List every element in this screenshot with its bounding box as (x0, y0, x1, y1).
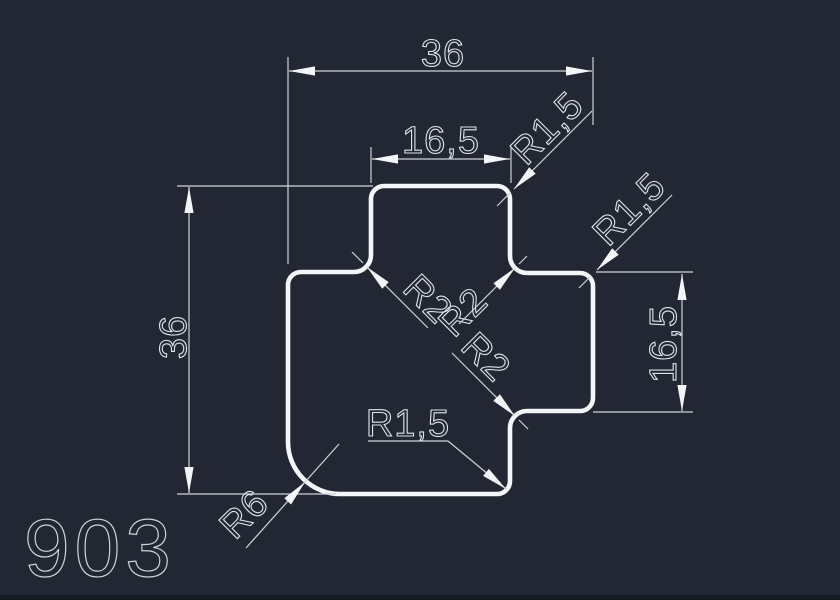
dim-right-tab-height-label: 16,5 (643, 305, 685, 383)
dim-overall-height: 36 (153, 186, 373, 494)
leader-tail (579, 276, 591, 288)
dim-overall-height-label: 36 (153, 315, 195, 359)
radius-label: R1,5 (503, 84, 592, 173)
dim-right-tab-height: 16,5 (593, 272, 693, 412)
radius-bottom-left-corner: R6 (212, 444, 339, 548)
arrowhead-bottom (677, 385, 686, 411)
drawing-svg: 36 16,5 36 16,5 (0, 0, 840, 600)
dim-top-tab-width-label: 16,5 (402, 120, 480, 162)
dim-overall-width-label: 36 (421, 33, 465, 75)
arrowhead-right (484, 154, 510, 163)
radius-right-tab-corner: R1,5 (579, 165, 674, 288)
drawing-number: 903 (24, 503, 176, 594)
radius-bottom-right-corner: R1,5 (366, 403, 506, 489)
viewport-bottom-edge (0, 595, 840, 600)
radius-label: R6 (212, 482, 277, 547)
arrowhead (483, 469, 506, 489)
arrowhead-left (289, 66, 315, 75)
leader-tail (352, 252, 363, 263)
profile-outline (288, 186, 593, 494)
radius-label: R1,5 (585, 165, 674, 254)
leader-tail (519, 256, 527, 264)
arrowhead-left (372, 154, 398, 163)
leader-tail (519, 420, 528, 429)
arrowhead-right (566, 66, 592, 75)
dim-top-tab-width: 16,5 (371, 120, 511, 183)
cad-viewport[interactable]: 36 16,5 36 16,5 (0, 0, 840, 600)
arrowhead (284, 482, 305, 505)
radius-top-tab-corner: R1,5 (497, 84, 592, 206)
radius-label: R1,5 (366, 403, 450, 445)
arrowhead-top (677, 274, 686, 300)
arrowhead-top (184, 187, 193, 213)
arrowhead-bottom (184, 467, 193, 493)
